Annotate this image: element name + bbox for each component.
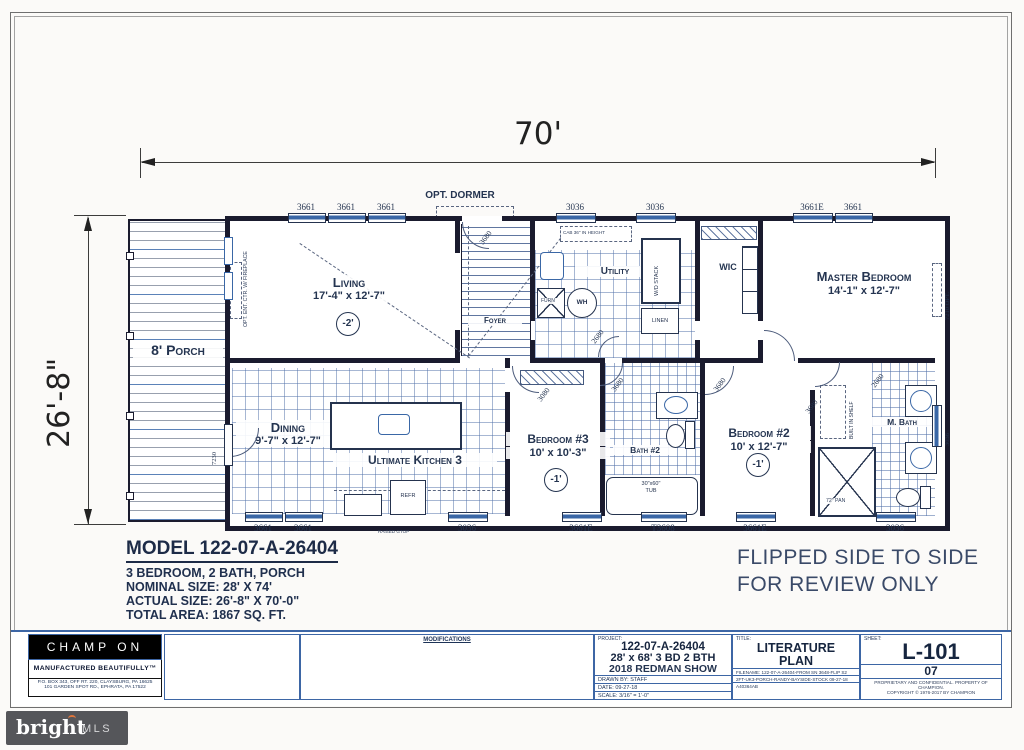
window-code: 3036 xyxy=(646,202,664,212)
bath2-sink xyxy=(664,396,688,414)
window-code: 3661 xyxy=(254,523,272,533)
mbath-sink-1 xyxy=(910,390,932,412)
window xyxy=(368,213,406,223)
window-code: 3661E xyxy=(800,202,824,212)
window-code: 3036 xyxy=(458,523,476,533)
modifications-cell: MODIFICATIONS xyxy=(300,634,594,700)
dimension-width-tick-right xyxy=(935,148,936,178)
wall-living-foyer-upper xyxy=(455,221,460,253)
room-label-living: Living xyxy=(297,275,401,290)
sheet-cell: SHEET: L-101 07 PROPRIETARY AND CONFIDEN… xyxy=(860,634,1002,700)
mbath-sink-2 xyxy=(910,447,932,469)
washer-dryer-label: W/D STACK xyxy=(654,242,660,296)
room-size-bed2: 10' x 12'-7" xyxy=(707,441,811,453)
cabinet-note: CAB 36" IN HEIGHT xyxy=(563,230,605,235)
entry-door-opening xyxy=(462,216,502,222)
flipped-note: FLIPPED SIDE TO SIDE FOR REVIEW ONLY xyxy=(737,546,1017,597)
floor-plan-sheet: 70' 26'-8" OPT. DORMER 8' Porch xyxy=(0,0,1024,750)
mbath-toilet xyxy=(896,488,920,507)
company-logo-block: CHAMP ON MANUFACTURED BEAUTIFULLY™ P.O. … xyxy=(28,634,162,700)
built-in-shelf-outline xyxy=(820,385,846,439)
shower-label: 72" PAN xyxy=(824,498,847,504)
company-address: P.O. BOX 343, OFF RT. 220, CLAYSBURG, PA… xyxy=(28,679,162,697)
wall-mid-left xyxy=(230,358,455,363)
arrow-right-icon xyxy=(921,158,936,166)
sheet-number: L-101 xyxy=(861,642,1001,662)
window-code: 3661 xyxy=(337,202,355,212)
company-logo: CHAMP ON xyxy=(28,634,162,660)
ent-center-label: OPT. ENT. CTR. W/ FIREPLACE xyxy=(243,255,249,327)
utility-sink xyxy=(540,252,564,280)
filename-row-2: 2FT-UK3-PORCH-RANDY-BAYSIDE-STOCK 09-27-… xyxy=(733,675,859,682)
window-code: 3661 xyxy=(297,202,315,212)
porch-window xyxy=(224,272,233,300)
window-code: 3036 xyxy=(944,404,951,446)
room-label-bed3: Bedroom #3 xyxy=(506,432,610,446)
tub-size-label: 30"x60" xyxy=(606,481,696,487)
porch-post xyxy=(126,252,134,260)
model-line-2: NOMINAL SIZE: 28' X 74' xyxy=(126,580,446,594)
wall-mid-bed2 xyxy=(700,358,760,363)
porch-post xyxy=(126,492,134,500)
room-size-living: 17'-4" x 12'-7" xyxy=(297,290,401,302)
window-code: 3036 xyxy=(886,523,904,533)
project-show: 2018 REDMAN SHOW xyxy=(595,664,731,675)
porch-deck xyxy=(128,219,229,522)
room-label-kitchen: Ultimate Kitchen 3 xyxy=(333,453,497,467)
window-code: 3036 xyxy=(566,202,584,212)
wall-living-foyer-lower xyxy=(455,330,460,363)
window xyxy=(636,213,676,223)
opt-dormer-label: OPT. DORMER xyxy=(400,190,520,201)
dimension-width-label: 70' xyxy=(488,116,588,152)
window xyxy=(556,213,596,223)
window xyxy=(288,213,326,223)
tub-label: TUB xyxy=(606,488,696,494)
room-size-bed3: 10' x 10'-3" xyxy=(506,447,610,459)
water-heater: WH xyxy=(567,288,597,318)
window xyxy=(736,512,776,522)
sheet-page: 07 xyxy=(861,664,1001,678)
bath2-toilet-tank xyxy=(685,421,695,449)
range-note: RAISED GTOP xyxy=(378,529,409,534)
project-drawn-by: DRAWN BY: STAFF xyxy=(595,675,731,683)
model-line-4: TOTAL AREA: 1867 SQ. FT. xyxy=(126,608,446,622)
filename-row-1: FILENAME: 122-07-A-26404-FROM SN 3648-FL… xyxy=(733,668,859,675)
window xyxy=(835,213,873,223)
window xyxy=(876,512,916,522)
model-block: MODEL 122-07-A-26404 3 BEDROOM, 2 BATH, … xyxy=(126,538,446,622)
wall-utility-wic xyxy=(695,221,700,321)
title-cell: TITLE: LITERATURE PLAN FILENAME: 122-07-… xyxy=(732,634,860,700)
arrow-down-icon xyxy=(84,509,92,524)
window-code: 3661 xyxy=(294,523,312,533)
modifications-header: MODIFICATIONS xyxy=(301,635,593,643)
ceiling-height-bed2: -1' xyxy=(746,453,770,477)
window-code: 3661 xyxy=(844,202,862,212)
porch-post xyxy=(126,332,134,340)
arrow-up-icon xyxy=(84,216,92,231)
company-address-2: 101 GARDEN SPOT RD., EPHRATA, PA 17522 xyxy=(29,685,161,690)
range xyxy=(344,494,382,516)
dimension-width-line xyxy=(142,162,934,163)
dimension-height-label: 26'-8" xyxy=(42,298,77,448)
wic-shelf xyxy=(701,226,757,240)
model-title: MODEL 122-07-A-26404 xyxy=(126,538,338,563)
window xyxy=(932,405,942,447)
ceiling-line xyxy=(468,226,469,356)
porch-window xyxy=(224,237,233,265)
bright-mls-watermark: bright MLS xyxy=(6,711,128,745)
room-label-bed2: Bedroom #2 xyxy=(707,426,811,440)
flipped-note-line-1: FLIPPED SIDE TO SIDE xyxy=(737,546,1017,570)
window xyxy=(245,512,283,522)
wall-bath2-top xyxy=(622,358,700,363)
bath2-toilet xyxy=(666,424,685,448)
ceiling-height-living: -2' xyxy=(336,312,360,336)
room-label-porch: 8' Porch xyxy=(133,342,223,358)
company-tagline: MANUFACTURED BEAUTIFULLY™ xyxy=(28,660,162,679)
linen-cabinet: LINEN xyxy=(641,308,679,334)
washer-dryer-stack xyxy=(641,238,681,304)
project-cell: PROJECT: 122-07-A-26404 28' x 68' 3 BD 2… xyxy=(594,634,732,700)
room-size-master: 14'-1" x 12'-7" xyxy=(792,285,936,297)
flipped-note-line-2: FOR REVIEW ONLY xyxy=(737,573,1017,597)
window-code: T3608 xyxy=(651,523,675,533)
window xyxy=(448,512,488,522)
room-label-bath2: Bath #2 xyxy=(613,445,677,455)
filename-code: A40364AB xyxy=(733,682,859,689)
fineprint-line-2: COPYRIGHT © 1976-2017 BY CHAMPION xyxy=(861,690,1001,695)
dimension-height-tick-top xyxy=(74,215,126,216)
door-label-porch: 7230 xyxy=(211,423,218,465)
model-line-3: ACTUAL SIZE: 26'-8" X 70'-0" xyxy=(126,594,446,608)
project-scale: SCALE: 3/16" = 1'-0" xyxy=(595,691,731,699)
wall-mid-center xyxy=(535,358,600,363)
project-date: DATE: 09-27-18 xyxy=(595,683,731,691)
wall-wic-master xyxy=(758,221,763,321)
opt-door-code: 7210 OPT. xyxy=(944,258,951,320)
watermark-accent-icon xyxy=(68,715,76,722)
refrigerator: REFR xyxy=(390,480,426,515)
filename-label: FILENAME: xyxy=(736,670,760,675)
window xyxy=(328,213,366,223)
furnace-label: FURN xyxy=(539,298,557,304)
window xyxy=(562,512,602,522)
model-line-1: 3 BEDROOM, 2 BATH, PORCH xyxy=(126,566,446,580)
watermark-suffix: MLS xyxy=(82,723,112,735)
porch-post xyxy=(126,412,134,420)
wic-drawers xyxy=(742,246,758,314)
window xyxy=(285,512,323,522)
window-code: 3661E xyxy=(743,523,767,533)
opt-door-opening xyxy=(932,263,942,317)
island-sink xyxy=(378,414,410,435)
shower xyxy=(818,447,876,517)
filename-1: 122-07-A-26404-FROM SN 3648-FLIP S2 xyxy=(762,670,847,675)
ceiling-height-bed3: -1' xyxy=(544,468,568,492)
built-in-shelf-label: BUILT IN SHELF xyxy=(849,383,855,439)
title-block-blank-cell xyxy=(164,634,300,700)
window-code: 3661E xyxy=(569,523,593,533)
window xyxy=(793,213,833,223)
porch-door-opening xyxy=(224,424,233,466)
drawing-title-line-2: PLAN xyxy=(733,655,859,668)
arrow-left-icon xyxy=(140,158,155,166)
room-label-mbath: M. Bath xyxy=(872,417,932,427)
wall-kitchen-bed3-stub xyxy=(505,358,510,368)
room-label-foyer: Foyer xyxy=(468,316,522,325)
window-code: 3661 xyxy=(377,202,395,212)
dimension-width-tick-left xyxy=(140,148,141,178)
dimension-height-line xyxy=(88,218,89,524)
mbath-toilet-tank xyxy=(920,486,931,509)
room-label-master: Master Bedroom xyxy=(792,269,936,284)
window xyxy=(641,512,687,522)
dimension-height-tick-bottom xyxy=(74,524,126,525)
fineprint-line-1: PROPRIETARY AND CONFIDENTIAL. PROPERTY O… xyxy=(861,678,1001,690)
